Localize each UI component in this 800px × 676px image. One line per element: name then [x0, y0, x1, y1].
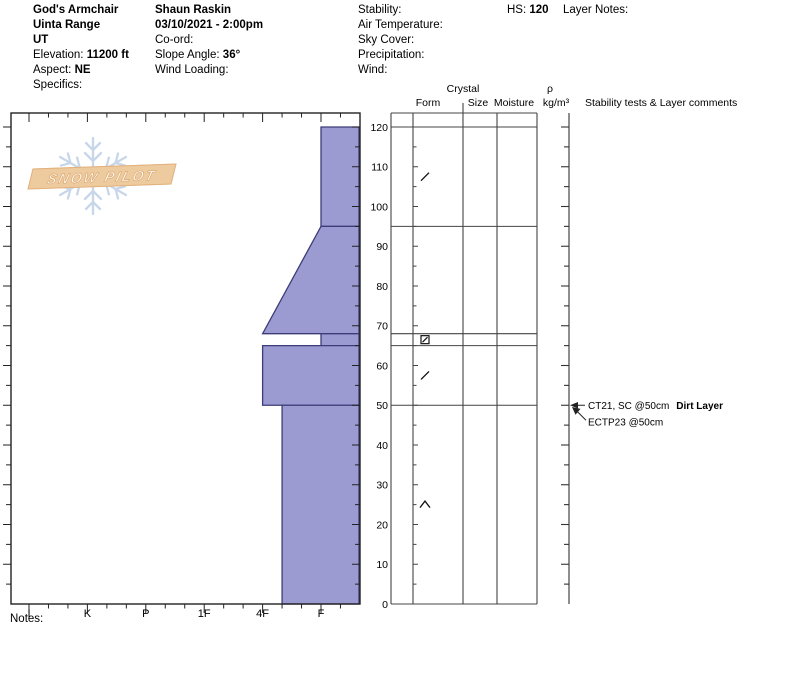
svg-text:10: 10 — [376, 559, 388, 571]
snow-layers — [263, 127, 359, 604]
svg-text:1F: 1F — [198, 608, 211, 620]
depth-axis-labels: 0102030405060708090100110120 — [370, 122, 388, 611]
form-slash-icon — [421, 371, 429, 379]
svg-text:60: 60 — [376, 360, 388, 372]
crystal-table-grid — [391, 103, 537, 604]
snow-profile-graph: 0102030405060708090100110120IKP1F4FFCT21… — [0, 0, 800, 676]
svg-text:4F: 4F — [256, 608, 269, 620]
stability-test-2: ECTP23 @50cm — [588, 417, 663, 428]
svg-text:70: 70 — [376, 321, 388, 333]
table-depth-ruler-ticks — [413, 147, 418, 584]
snow-layer — [321, 127, 359, 226]
svg-text:0: 0 — [382, 599, 388, 611]
stability-test-annotations: CT21, SC @50cmDirt LayerECTP23 @50cm — [570, 401, 723, 428]
svg-text:20: 20 — [376, 519, 388, 531]
snowpilot-report-page: God's Armchair Uinta Range UT Elevation:… — [0, 0, 800, 676]
stability-test-1: CT21, SC @50cmDirt Layer — [588, 401, 723, 412]
svg-text:K: K — [84, 608, 92, 620]
svg-text:F: F — [318, 608, 325, 620]
svg-text:30: 30 — [376, 480, 388, 492]
density-axis — [561, 113, 569, 604]
svg-text:90: 90 — [376, 241, 388, 253]
snow-layer — [263, 346, 359, 406]
snow-layer — [321, 334, 359, 346]
snow-layer — [282, 405, 359, 604]
crystal-form-symbols — [420, 173, 430, 508]
svg-text:I: I — [27, 608, 30, 620]
svg-text:110: 110 — [371, 162, 388, 174]
svg-text:50: 50 — [376, 400, 388, 412]
svg-text:120: 120 — [370, 122, 388, 134]
form-slash-icon — [421, 173, 429, 181]
svg-text:40: 40 — [376, 440, 388, 452]
svg-text:100: 100 — [370, 201, 388, 213]
hardness-axis-labels: IKP1F4FF — [27, 608, 324, 620]
svg-text:P: P — [142, 608, 149, 620]
snow-layer — [263, 226, 359, 333]
svg-text:80: 80 — [376, 281, 388, 293]
form-chevron-icon — [420, 501, 430, 508]
